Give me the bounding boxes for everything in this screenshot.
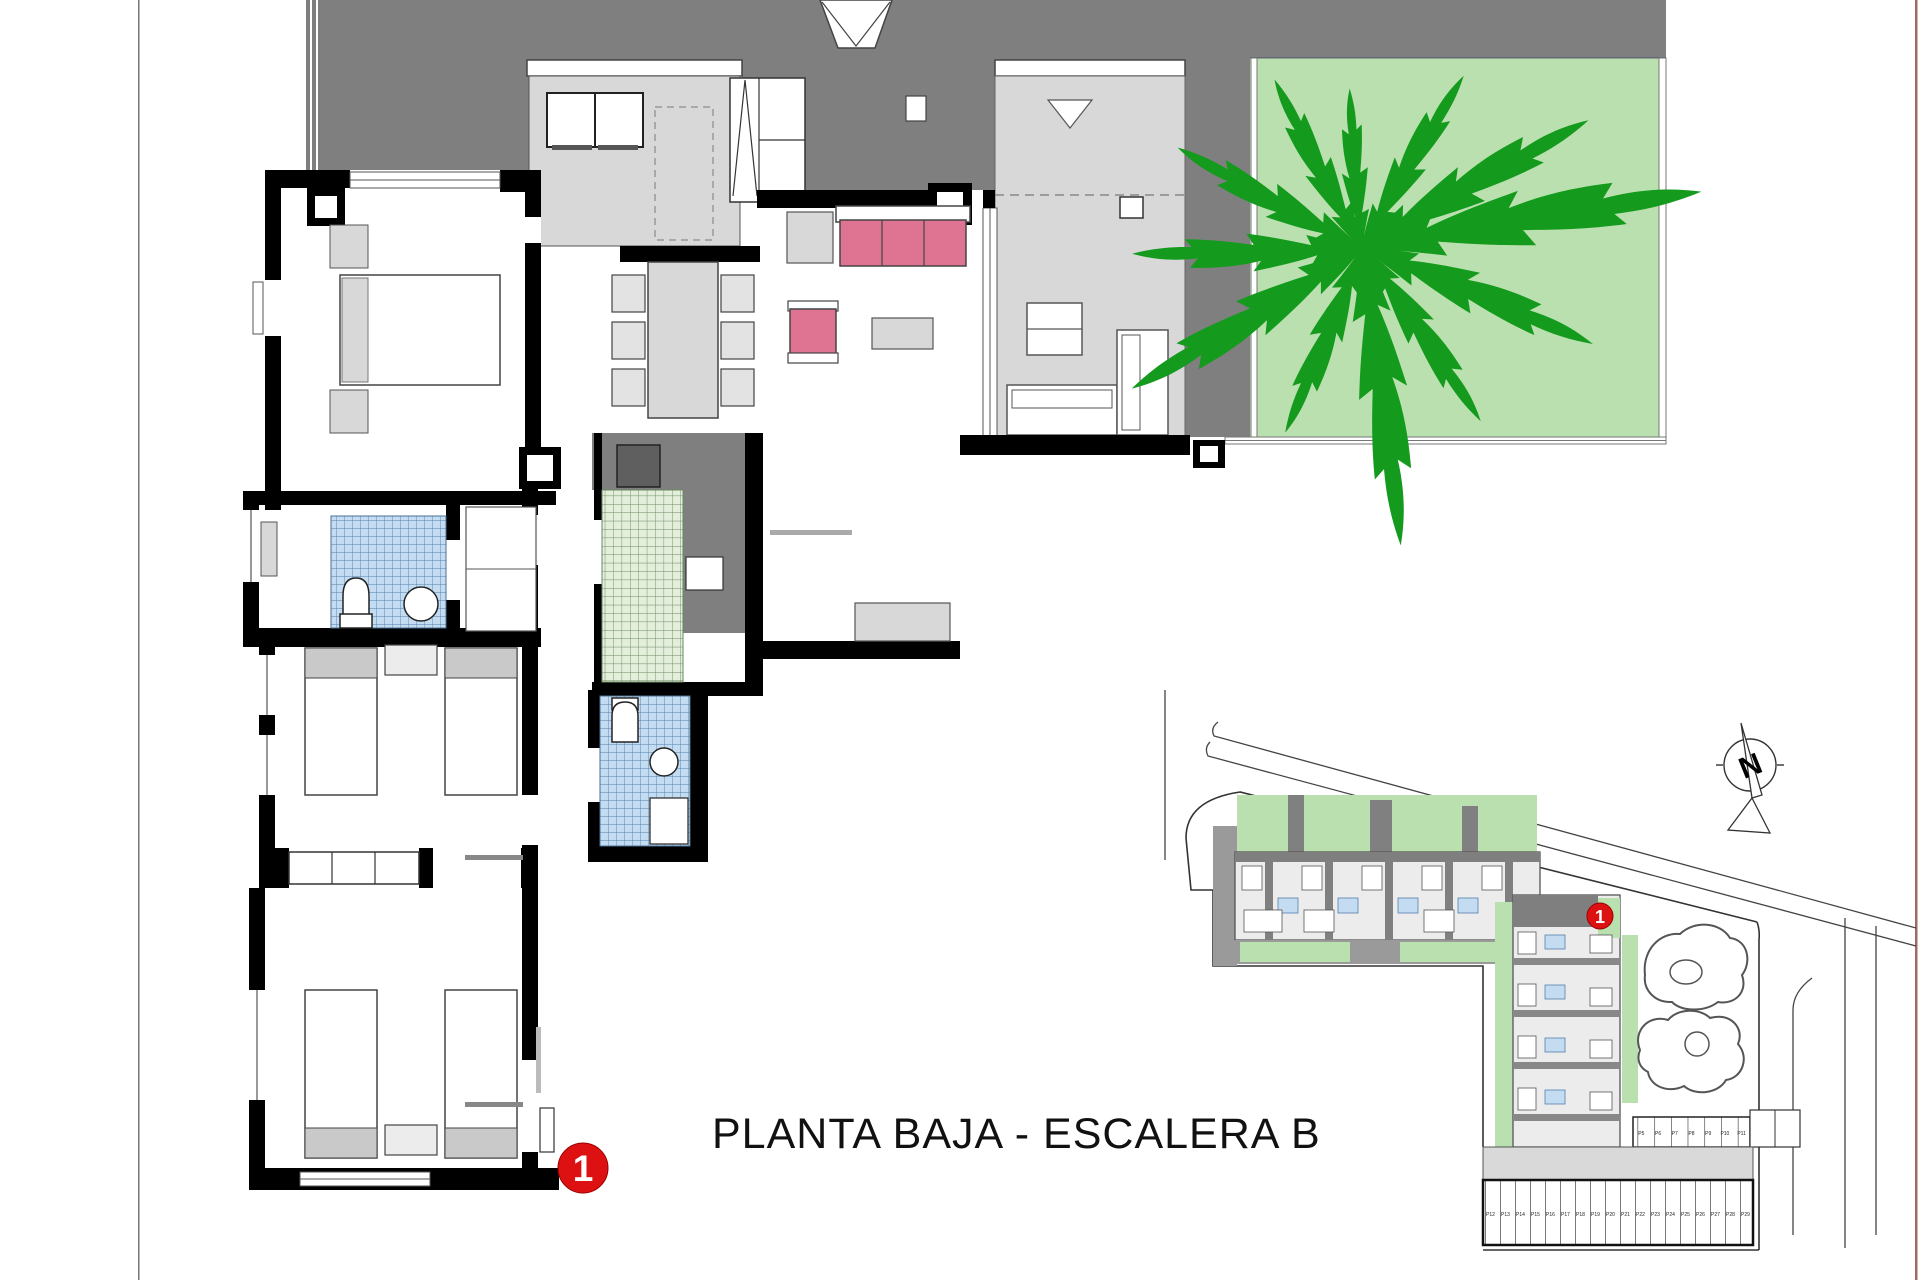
parking-stall-label: P11: [1737, 1131, 1746, 1137]
north-arrow-icon: N: [1716, 723, 1784, 833]
parking-stall-label: P24: [1666, 1212, 1675, 1218]
dining-set: [612, 262, 754, 418]
kitchen-floor: [602, 490, 683, 682]
armchair: [790, 309, 836, 355]
site-building-right: [1495, 895, 1638, 1147]
floorplan-canvas: P5P6P7P8P9P10P11 P12P13P14P15P16P17P18P1…: [0, 0, 1920, 1280]
parking-stall-label: P17: [1561, 1212, 1570, 1218]
living-terrace-glazing: [983, 208, 997, 437]
sofa: [840, 220, 966, 266]
parking-stall-label: P29: [1741, 1212, 1750, 1218]
parking-stall-label: P28: [1726, 1212, 1735, 1218]
floorplan-unit-number: 1: [573, 1148, 594, 1189]
parking-stall-label: P8: [1688, 1131, 1694, 1137]
parking-stall-label: P15: [1531, 1212, 1540, 1218]
parking-stall-label: P26: [1696, 1212, 1705, 1218]
site-pool: [1638, 925, 1747, 1093]
washbasin-icon: [404, 587, 438, 621]
sideboard: [855, 603, 950, 641]
parking-stall-label: P18: [1576, 1212, 1585, 1218]
floorplan-document: P5P6P7P8P9P10P11 P12P13P14P15P16P17P18P1…: [0, 0, 1920, 1280]
parking-stall-label: P27: [1711, 1212, 1720, 1218]
entry-door-closets: [730, 78, 805, 202]
site-plan: P5P6P7P8P9P10P11 P12P13P14P15P16P17P18P1…: [1165, 690, 1916, 1250]
parking-stall-label: P12: [1486, 1212, 1495, 1218]
parking-stall-label: P5: [1638, 1131, 1644, 1137]
parking-stall-label: P23: [1651, 1212, 1660, 1218]
parking-stall-label: P20: [1606, 1212, 1615, 1218]
parking-stall-label: P21: [1621, 1212, 1630, 1218]
parking-stall-label: P10: [1720, 1131, 1729, 1137]
floorplan-unit-marker: 1: [558, 1143, 608, 1193]
siteplan-unit-number: 1: [1595, 907, 1605, 927]
parking-stall-label: P13: [1501, 1212, 1510, 1218]
parking-stall-label: P7: [1672, 1131, 1678, 1137]
living-furniture: [770, 206, 970, 641]
bedroom1-furniture: [330, 225, 500, 433]
parking-stall-label: P19: [1591, 1212, 1600, 1218]
parking-stall-label: P25: [1681, 1212, 1690, 1218]
site-building-left: [1213, 795, 1540, 966]
page-title: PLANTA BAJA - ESCALERA B: [712, 1110, 1321, 1158]
entry-vestibule: [527, 60, 742, 246]
parking-stall-label: P6: [1655, 1131, 1661, 1137]
parking-stall-label: P16: [1546, 1212, 1555, 1218]
parking-stall-label: P22: [1636, 1212, 1645, 1218]
parking-stall-label: P14: [1516, 1212, 1525, 1218]
siteplan-unit-marker: 1: [1587, 903, 1613, 929]
apartment-entrance-door: [536, 1027, 554, 1152]
parking-stall-label: P9: [1705, 1131, 1711, 1137]
bedroom2-furniture: [305, 645, 523, 860]
bedroom3-furniture: [305, 990, 523, 1158]
hall-closets: [289, 852, 419, 884]
north-label: N: [1734, 747, 1766, 786]
